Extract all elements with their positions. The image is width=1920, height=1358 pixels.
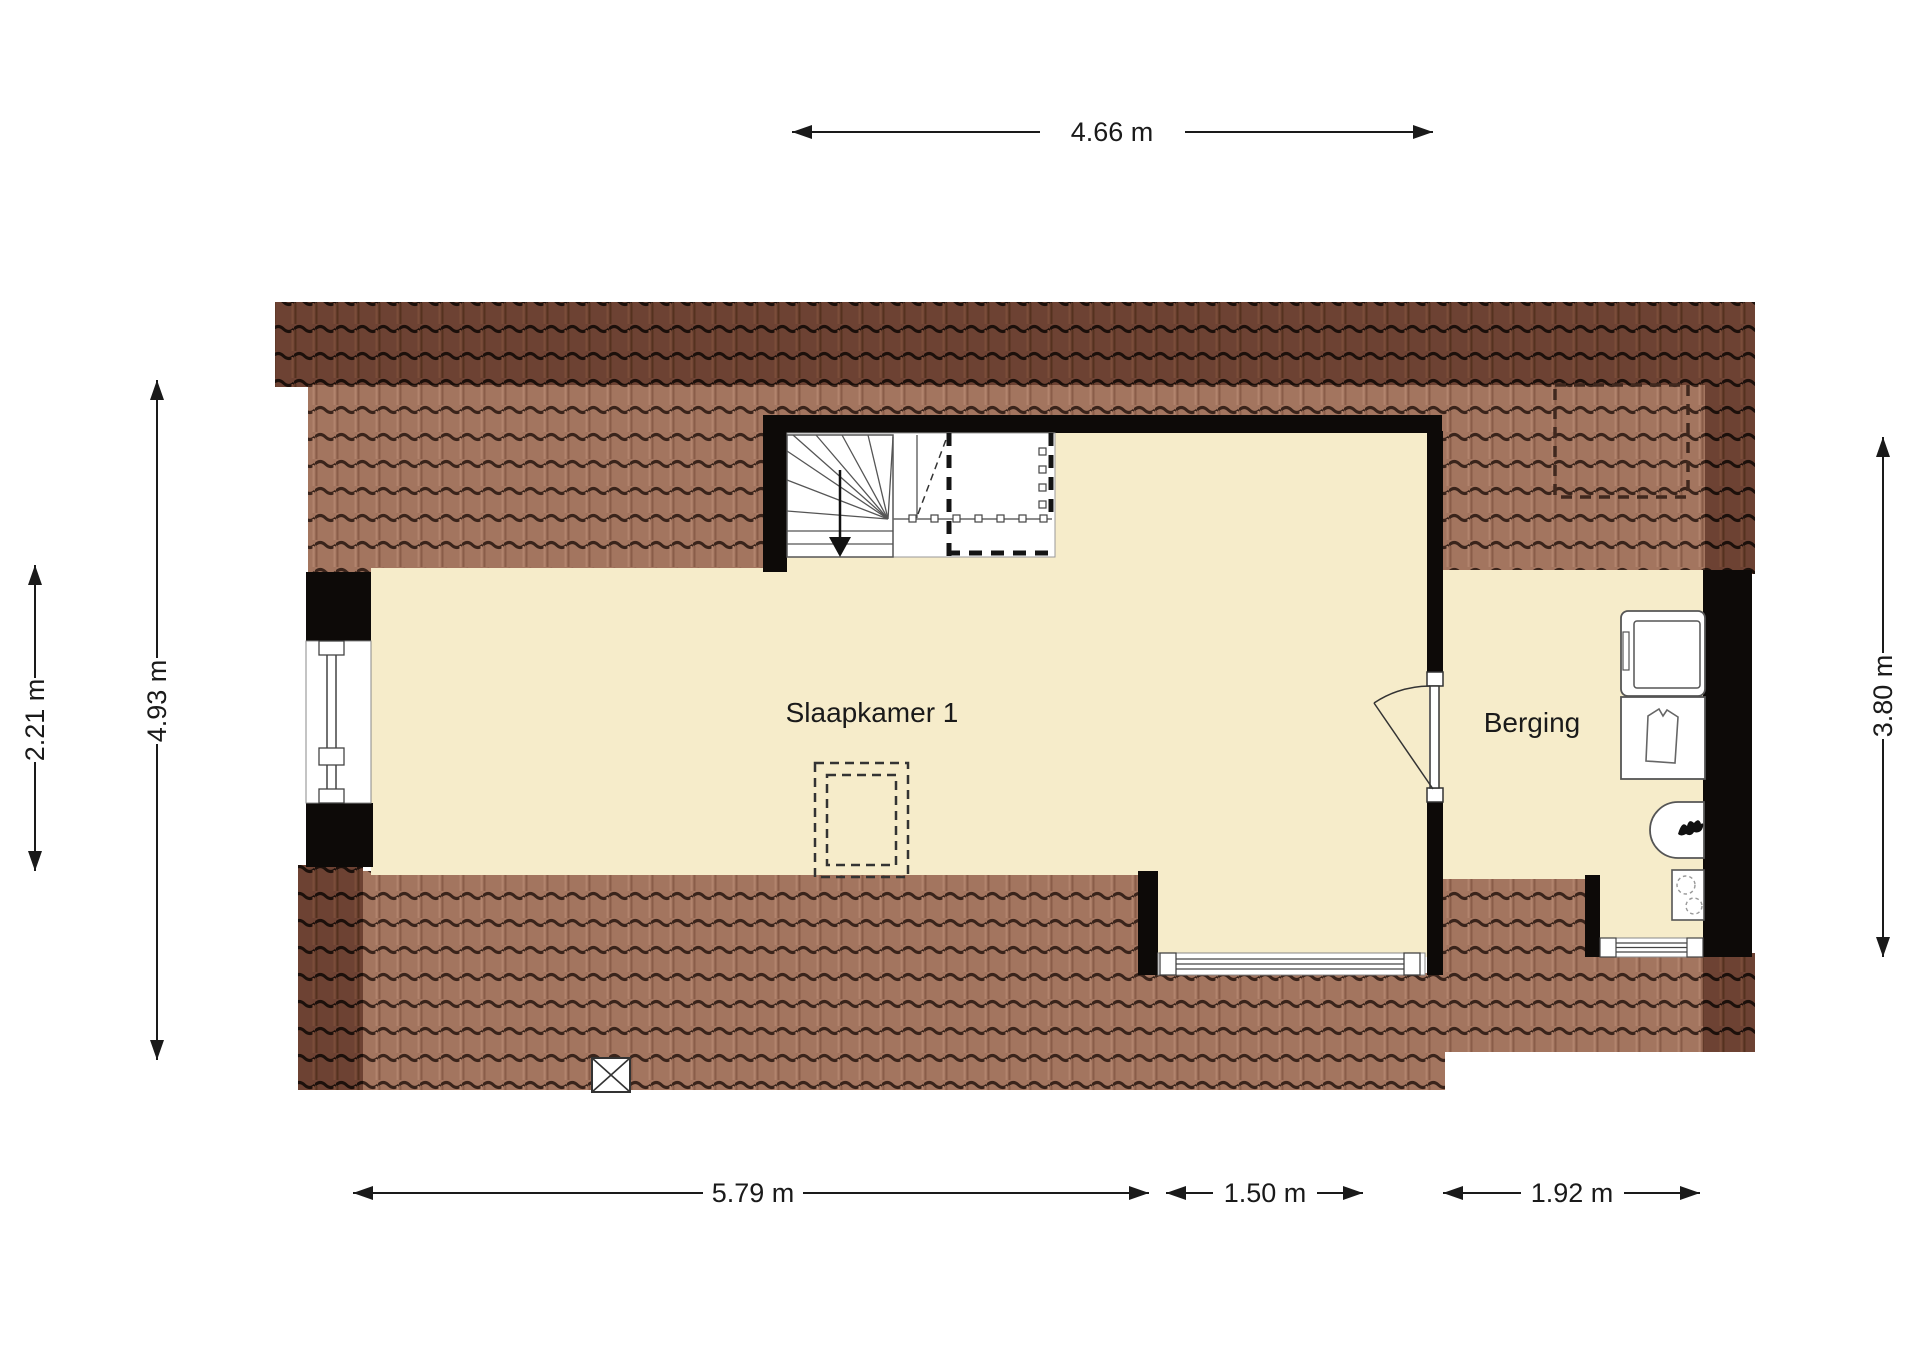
slaapkamer-dormer-bay <box>1156 871 1429 957</box>
floorplan-drawing: Slaapkamer 1 Berging 4.66 m 2.21 m 4.93 … <box>0 0 1920 1358</box>
staircase-icon <box>787 433 1055 557</box>
wall-left-upper-block <box>306 572 371 641</box>
dim-bottom-middle: 1.50 m <box>1224 1178 1307 1208</box>
roof-top-right-light <box>1438 385 1707 574</box>
shaft-cross-box-icon <box>592 1058 630 1092</box>
dim-top: 4.66 m <box>1071 117 1154 147</box>
room-label-berging: Berging <box>1484 707 1581 738</box>
room-label-slaapkamer: Slaapkamer 1 <box>786 697 959 728</box>
roof-top-dark-band <box>275 302 1755 387</box>
dim-right: 3.80 m <box>1868 655 1898 738</box>
roof-top-left-light <box>308 385 767 572</box>
wall-left-lower-block <box>306 803 373 867</box>
wall-divider-lower <box>1427 788 1443 975</box>
hob-icon <box>1672 870 1704 920</box>
dim-left-inner: 4.93 m <box>142 660 172 743</box>
roof-right-edge-dark <box>1705 385 1755 574</box>
window-left-jamb <box>319 748 344 765</box>
washing-machine-icon <box>1621 611 1705 696</box>
window-dormer-jamb <box>1160 953 1176 975</box>
roof-above-wall-light <box>763 385 1442 417</box>
window-left-jamb <box>319 641 344 655</box>
roof-bottom-right-dark <box>1703 953 1755 1052</box>
window-dormer-jamb <box>1404 953 1420 975</box>
dim-left-outer: 2.21 m <box>20 679 50 762</box>
wall-top <box>763 415 1442 433</box>
wall-dormer-left <box>1138 871 1158 975</box>
roof-below-dormer-light <box>1138 973 1445 1090</box>
door-leaf <box>1430 686 1439 788</box>
roof-bottom-left-light <box>300 871 1140 1090</box>
window-left-bay <box>306 641 371 803</box>
window-left-icon <box>306 641 371 803</box>
window-berging-jamb <box>1687 938 1703 957</box>
wall-stair-left <box>763 415 787 572</box>
door-jamb-bottom <box>1427 788 1443 802</box>
roof-below-berging-left <box>1441 875 1602 1052</box>
window-dormer-icon <box>1158 953 1425 975</box>
floorplan-canvas: Slaapkamer 1 Berging 4.66 m 2.21 m 4.93 … <box>0 0 1920 1358</box>
window-berging-icon <box>1600 938 1703 957</box>
wall-divider-upper <box>1427 431 1443 672</box>
dim-bottom-left: 5.79 m <box>712 1178 795 1208</box>
roof-bottom-left-corner-dark <box>298 865 363 1090</box>
boiler-flame-icon <box>1650 802 1704 858</box>
dim-bottom-right: 1.92 m <box>1531 1178 1614 1208</box>
roof-below-berging-window <box>1598 953 1705 1052</box>
door-jamb-top <box>1427 672 1443 686</box>
window-left-jamb <box>319 789 344 803</box>
laundry-tub-icon <box>1621 697 1705 779</box>
wall-right-thick <box>1703 570 1752 957</box>
window-berging-jamb <box>1600 938 1616 957</box>
wall-berging-bottom-block <box>1585 875 1600 957</box>
